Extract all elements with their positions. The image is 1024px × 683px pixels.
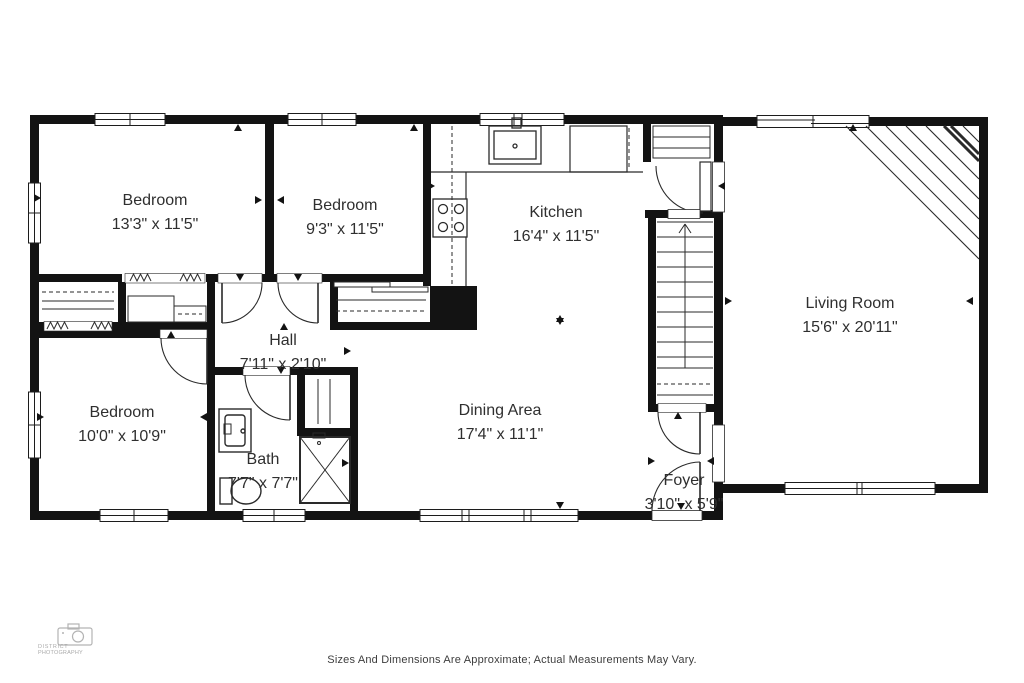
door-swing-stair-closet (658, 404, 706, 455)
stair-closet-shelf (657, 384, 713, 395)
chimney-block (430, 286, 477, 330)
room-name: Foyer (645, 469, 724, 493)
shower-icon (300, 433, 350, 503)
room-dimensions: 10'0" x 10'9" (78, 425, 166, 449)
sliding-closet-door-icon (334, 282, 428, 311)
room-dimensions: 7'11" x 2'10" (240, 353, 327, 377)
room-dimensions: 13'3" x 11'5" (112, 213, 199, 237)
window-symbol (288, 114, 356, 126)
closet-shelves-icon (42, 292, 114, 309)
room-label-foyer: Foyer 3'10" x 5'9" (645, 469, 724, 517)
room-label-bedroom-rear: Bedroom 10'0" x 10'9" (78, 401, 166, 449)
room-name: Living Room (802, 292, 897, 316)
stove-icon (433, 199, 467, 237)
room-dimensions: 16'4" x 11'5" (513, 225, 600, 249)
marker-left-icon (277, 196, 284, 204)
room-label-kitchen: Kitchen 16'4" x 11'5" (513, 201, 600, 249)
linen-closet-shelves (318, 379, 330, 424)
room-name: Kitchen (513, 201, 600, 225)
door-swing-back-entry (656, 162, 725, 213)
room-label-hall: Hall 7'11" x 2'10" (240, 329, 327, 377)
window-symbol (480, 114, 564, 126)
room-name: Bedroom (112, 189, 199, 213)
marker-left-icon (966, 297, 973, 305)
window-symbol (100, 510, 168, 522)
marker-down-icon (556, 502, 564, 509)
vanity-sink-icon (219, 409, 251, 452)
room-dimensions: 17'4" x 11'1" (457, 423, 544, 447)
watermark-line2: PHOTOGRAPHY (38, 650, 83, 656)
door-swing-bedroom-middle (277, 274, 322, 324)
marker-right-icon (725, 297, 732, 305)
marker-up-icon (674, 412, 682, 419)
marker-right-icon (342, 459, 349, 467)
window-symbol (420, 510, 578, 522)
room-name: Hall (240, 329, 327, 353)
marker-right-icon (255, 196, 262, 204)
room-label-dining-area: Dining Area 17'4" x 11'1" (457, 399, 544, 447)
room-label-bedroom-front: Bedroom 13'3" x 11'5" (112, 189, 199, 237)
room-name: Bath (228, 448, 298, 472)
disclaimer-text: Sizes And Dimensions Are Approximate; Ac… (327, 654, 696, 666)
windows (29, 114, 936, 522)
floor-plan-page: Bedroom 13'3" x 11'5" Bedroom 9'3" x 11'… (0, 0, 1024, 683)
window-symbol (29, 183, 41, 243)
marker-up-icon (234, 124, 242, 131)
photographer-watermark: DISTRICT PHOTOGRAPHY (34, 620, 104, 656)
window-symbol (243, 510, 305, 522)
window-symbol (95, 114, 165, 126)
room-label-bedroom-middle: Bedroom 9'3" x 11'5" (306, 194, 384, 242)
corner-stair-hatch (846, 126, 979, 259)
marker-left-icon (707, 457, 714, 465)
room-label-living-room: Living Room 15'6" x 20'11" (802, 292, 897, 340)
marker-left-icon (200, 413, 207, 421)
refrigerator-icon (570, 126, 627, 172)
marker-up-icon (410, 124, 418, 131)
room-dimensions: 3'10" x 5'9" (645, 493, 724, 517)
window-symbol (29, 392, 41, 458)
window-symbol (785, 483, 935, 495)
stairs-up-icon (679, 224, 691, 368)
room-dimensions: 15'6" x 20'11" (802, 316, 897, 340)
opening-stair-top (668, 210, 700, 219)
closet-shelves-icon (128, 296, 206, 322)
marker-right-icon (428, 182, 435, 190)
room-label-bath: Bath 7'7" x 7'7" (228, 448, 298, 496)
floor-plan-drawing (0, 0, 1024, 683)
room-dimensions: 9'3" x 11'5" (306, 218, 384, 242)
room-name: Bedroom (78, 401, 166, 425)
marker-right-icon (648, 457, 655, 465)
door-swing-bedroom-rear (160, 330, 207, 385)
room-name: Bedroom (306, 194, 384, 218)
back-entry-landing (653, 126, 710, 158)
room-dimensions: 7'7" x 7'7" (228, 472, 298, 496)
room-name: Dining Area (457, 399, 544, 423)
camera-icon (58, 624, 92, 645)
marker-right-icon (344, 347, 351, 355)
